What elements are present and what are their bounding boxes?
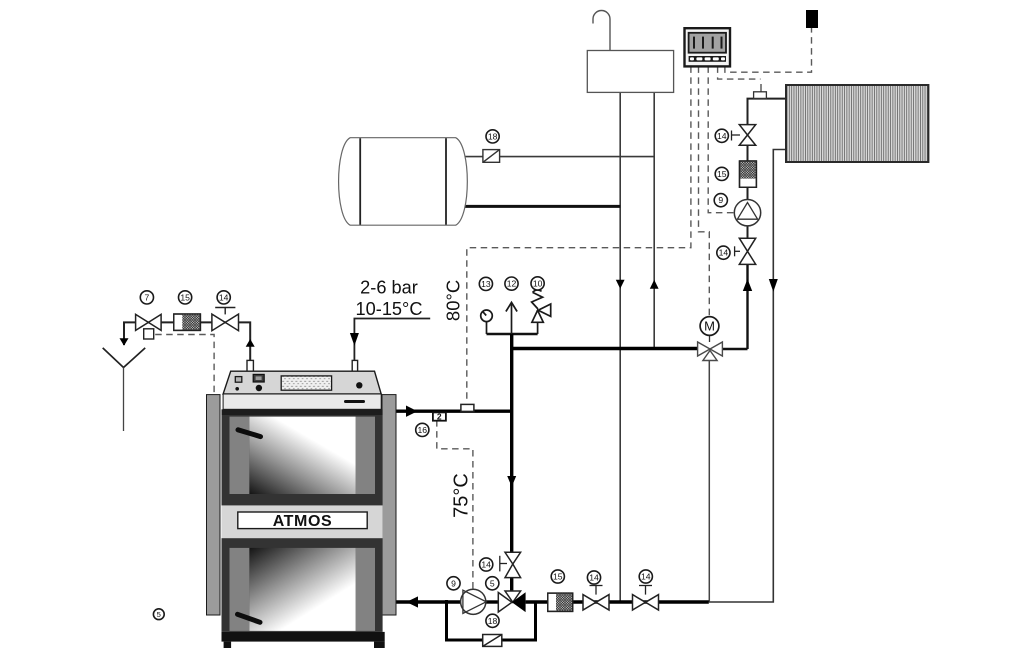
svg-text:10: 10: [533, 278, 543, 288]
svg-text:15: 15: [553, 572, 563, 582]
svg-text:12: 12: [507, 279, 517, 289]
svg-text:5: 5: [157, 610, 161, 619]
svg-text:80°C: 80°C: [443, 280, 464, 321]
svg-text:2-6 bar: 2-6 bar: [360, 277, 418, 297]
svg-text:14: 14: [641, 572, 651, 582]
svg-text:ATMOS: ATMOS: [273, 513, 333, 530]
svg-text:2: 2: [437, 411, 442, 421]
svg-text:18: 18: [488, 131, 498, 141]
svg-text:14: 14: [219, 292, 229, 302]
svg-text:M: M: [704, 319, 715, 334]
svg-text:14: 14: [481, 560, 491, 570]
svg-text:13: 13: [481, 279, 491, 289]
svg-text:18: 18: [488, 616, 498, 626]
svg-text:15: 15: [180, 292, 190, 302]
svg-text:14: 14: [589, 573, 599, 583]
svg-text:9: 9: [718, 195, 723, 205]
svg-text:9: 9: [451, 578, 456, 588]
svg-text:15: 15: [717, 169, 727, 179]
svg-text:75°C: 75°C: [451, 473, 473, 518]
svg-text:14: 14: [719, 248, 729, 258]
svg-text:14: 14: [717, 131, 727, 141]
svg-text:5: 5: [490, 578, 495, 588]
svg-text:16: 16: [418, 425, 428, 435]
svg-text:10-15°C: 10-15°C: [356, 299, 423, 319]
svg-text:7: 7: [145, 292, 150, 302]
